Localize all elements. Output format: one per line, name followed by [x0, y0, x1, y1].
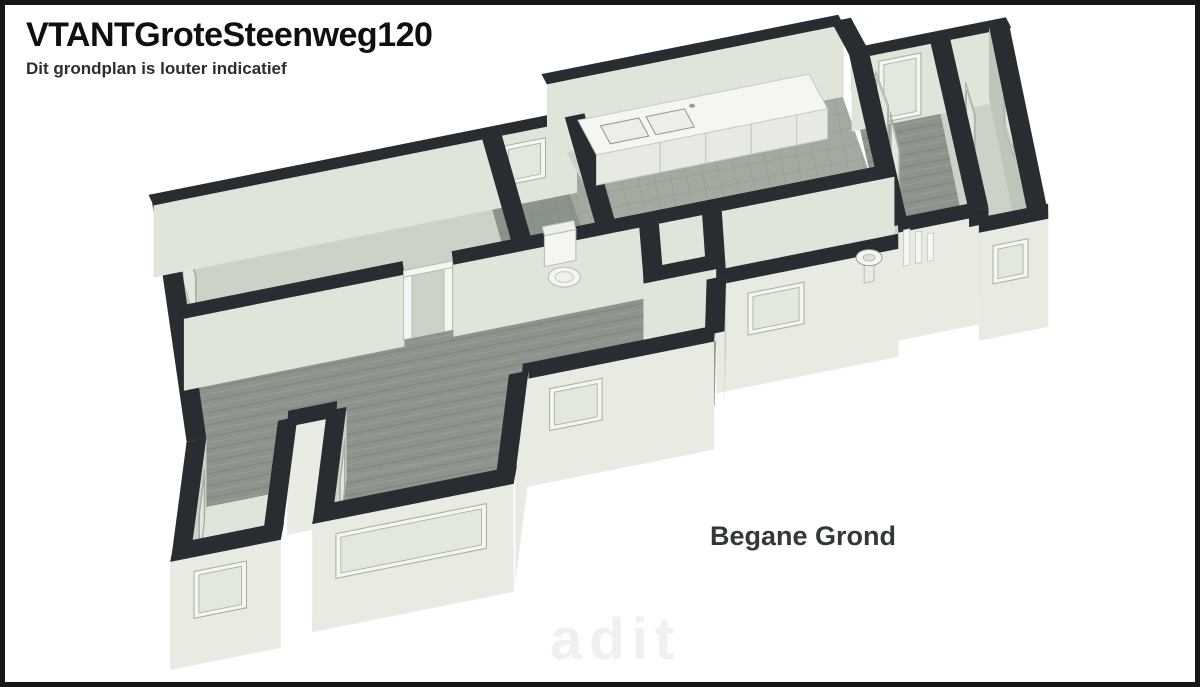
- floor-name-label: Begane Grond: [710, 521, 896, 552]
- page-title: VTANTGroteSteenweg120: [26, 17, 432, 54]
- page-frame: VTANTGroteSteenweg120 Dit grondplan is l…: [0, 0, 1200, 687]
- floorplan-3d-render: [0, 0, 1200, 687]
- watermark-text: adit: [550, 606, 681, 673]
- header: VTANTGroteSteenweg120 Dit grondplan is l…: [26, 17, 432, 79]
- page-subtitle: Dit grondplan is louter indicatief: [26, 59, 432, 79]
